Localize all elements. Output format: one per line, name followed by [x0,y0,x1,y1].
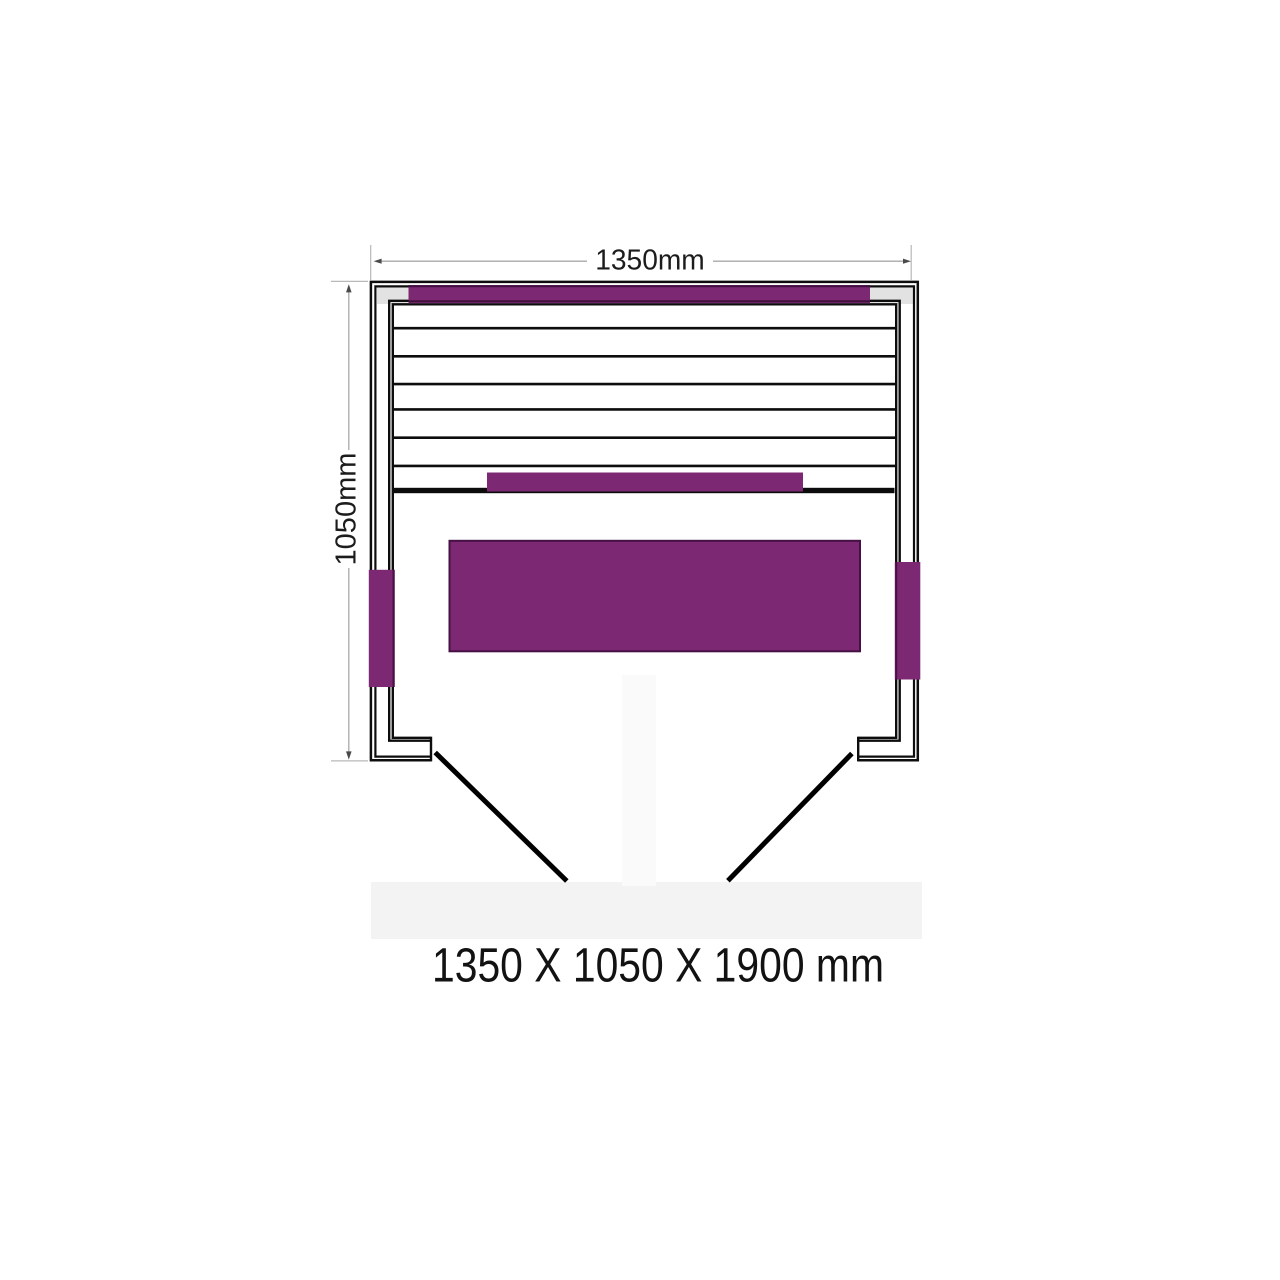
svg-text:1050mm: 1050mm [331,453,363,566]
svg-text:1350 X 1050 X 1900 mm: 1350 X 1050 X 1900 mm [432,939,884,993]
svg-text:1350mm: 1350mm [595,245,705,277]
